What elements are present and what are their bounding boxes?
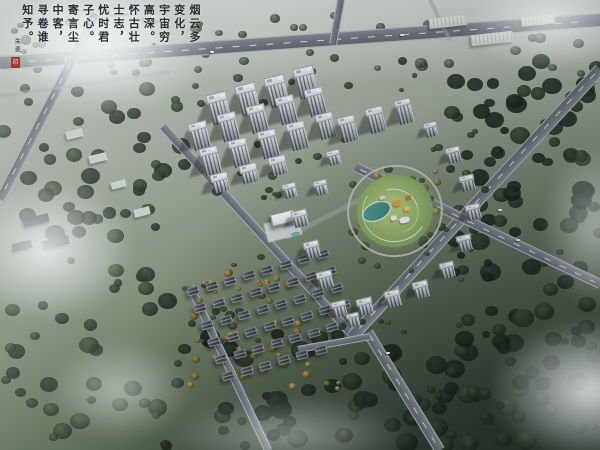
artist-seal-icon: 印 (11, 57, 20, 68)
artist-signature: 朱麦 (12, 38, 22, 53)
poem-column: 烟云多 (187, 4, 202, 74)
poem-column: 寄言尘 (65, 4, 80, 74)
fog-cloud (120, 380, 460, 450)
fog-cloud (520, 110, 600, 340)
poem-column: 怀古壮 (126, 4, 141, 74)
poem-column: 士志， (111, 4, 126, 74)
poem-column: 宇宙穷 (156, 4, 171, 74)
calligraphy-inscription: 烟云多变化，宇宙穷高深。怀古壮士志，忧时君子心。寄言尘中客，寻卷谁知予。 朱麦 … (8, 2, 202, 76)
poem-columns: 烟云多变化，宇宙穷高深。怀古壮士志，忧时君子心。寄言尘中客，寻卷谁知予。 (20, 4, 202, 74)
poem-column: 寻卷谁 (35, 4, 50, 74)
fog-cloud (430, 0, 600, 90)
poem-column: 中客， (50, 4, 65, 74)
poem-column: 变化， (172, 4, 187, 74)
poem-column: 忧时君 (96, 4, 111, 74)
fog-cloud (0, 150, 170, 350)
fog-cloud (20, 320, 220, 450)
poem-column: 高深。 (141, 4, 156, 74)
poem-column: 子心。 (80, 4, 95, 74)
fog-cloud (450, 290, 600, 450)
aerial-masterplan-rendering: 烟云多变化，宇宙穷高深。怀古壮士志，忧时君子心。寄言尘中客，寻卷谁知予。 朱麦 … (0, 0, 600, 450)
